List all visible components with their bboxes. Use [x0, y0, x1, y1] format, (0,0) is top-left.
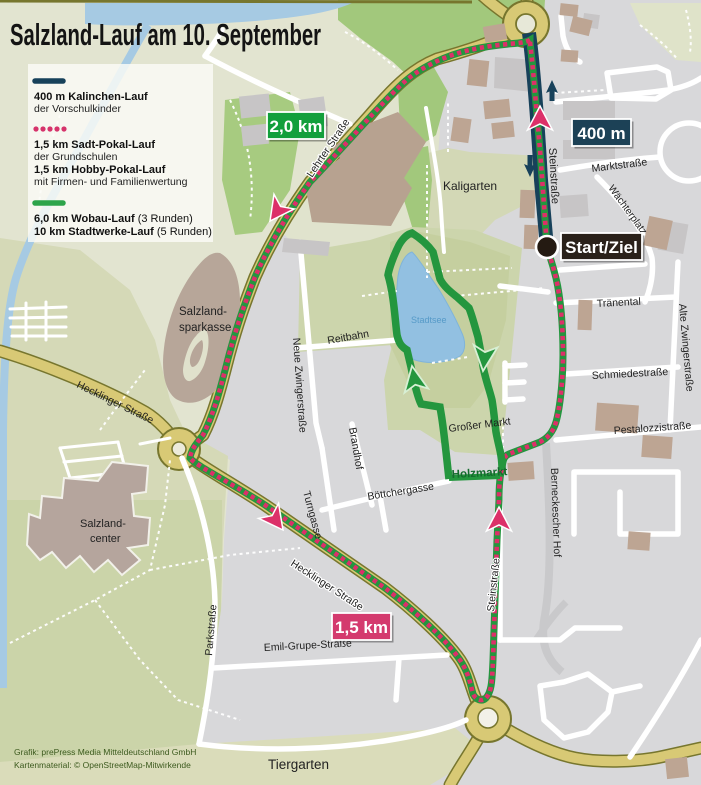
svg-text:sparkasse: sparkasse	[179, 322, 231, 334]
svg-text:Salzland-Lauf am 10. September: Salzland-Lauf am 10. September	[10, 17, 321, 52]
svg-text:der Vorschulkinder: der Vorschulkinder	[34, 103, 121, 115]
svg-text:Salzland-: Salzland-	[80, 518, 126, 530]
svg-text:400 m Kalinchen-Lauf: 400 m Kalinchen-Lauf	[34, 91, 148, 103]
svg-text:Start/Ziel: Start/Ziel	[565, 238, 638, 257]
svg-text:2,0 km: 2,0 km	[270, 117, 323, 136]
svg-text:der Grundschulen: der Grundschulen	[34, 151, 118, 163]
svg-text:Tränental: Tränental	[597, 296, 642, 310]
svg-text:1,5 km Hobby-Pokal-Lauf: 1,5 km Hobby-Pokal-Lauf	[34, 164, 166, 176]
svg-text:Salzland-: Salzland-	[179, 306, 227, 318]
svg-text:Kartenmaterial: © OpenStreetMa: Kartenmaterial: © OpenStreetMap-Mitwirke…	[14, 760, 191, 770]
svg-text:10 km Stadtwerke-Lauf (5 Runde: 10 km Stadtwerke-Lauf (5 Runden)	[34, 226, 212, 238]
svg-text:Tiergarten: Tiergarten	[268, 757, 329, 772]
svg-text:400 m: 400 m	[577, 124, 625, 143]
svg-text:Stadtsee: Stadtsee	[411, 315, 447, 325]
svg-text:1,5 km: 1,5 km	[335, 618, 388, 637]
svg-text:Grafik: prePress Media Mitteld: Grafik: prePress Media Mitteldeutschland…	[14, 747, 196, 757]
svg-text:1,5 km Sadt-Pokal-Lauf: 1,5 km Sadt-Pokal-Lauf	[34, 139, 155, 151]
svg-text:Kaligarten: Kaligarten	[443, 179, 497, 193]
svg-text:mit Firmen- und Familienwertun: mit Firmen- und Familienwertung	[34, 176, 188, 188]
svg-text:6,0 km Wobau-Lauf (3 Runden): 6,0 km Wobau-Lauf (3 Runden)	[34, 213, 193, 225]
svg-text:center: center	[90, 533, 121, 545]
